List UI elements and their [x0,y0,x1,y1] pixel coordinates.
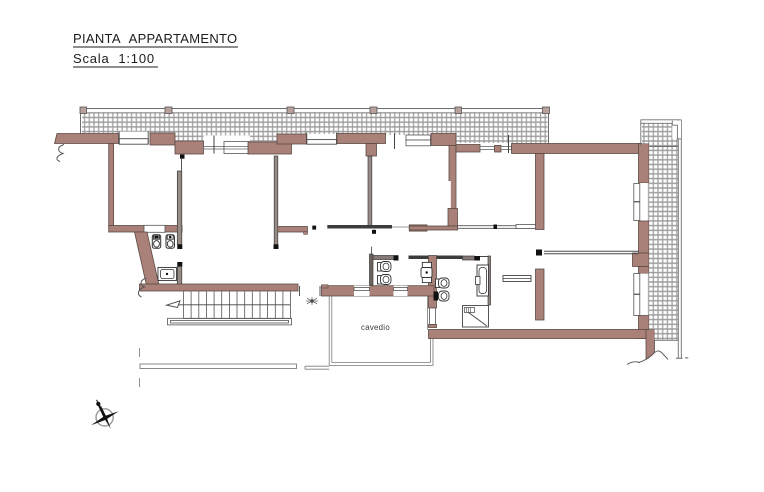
svg-text:PIANTA APPARTAMENTO: PIANTA APPARTAMENTO [73,31,237,46]
svg-text:cavedio: cavedio [361,323,390,332]
svg-text:Scala 1:100: Scala 1:100 [73,51,155,66]
